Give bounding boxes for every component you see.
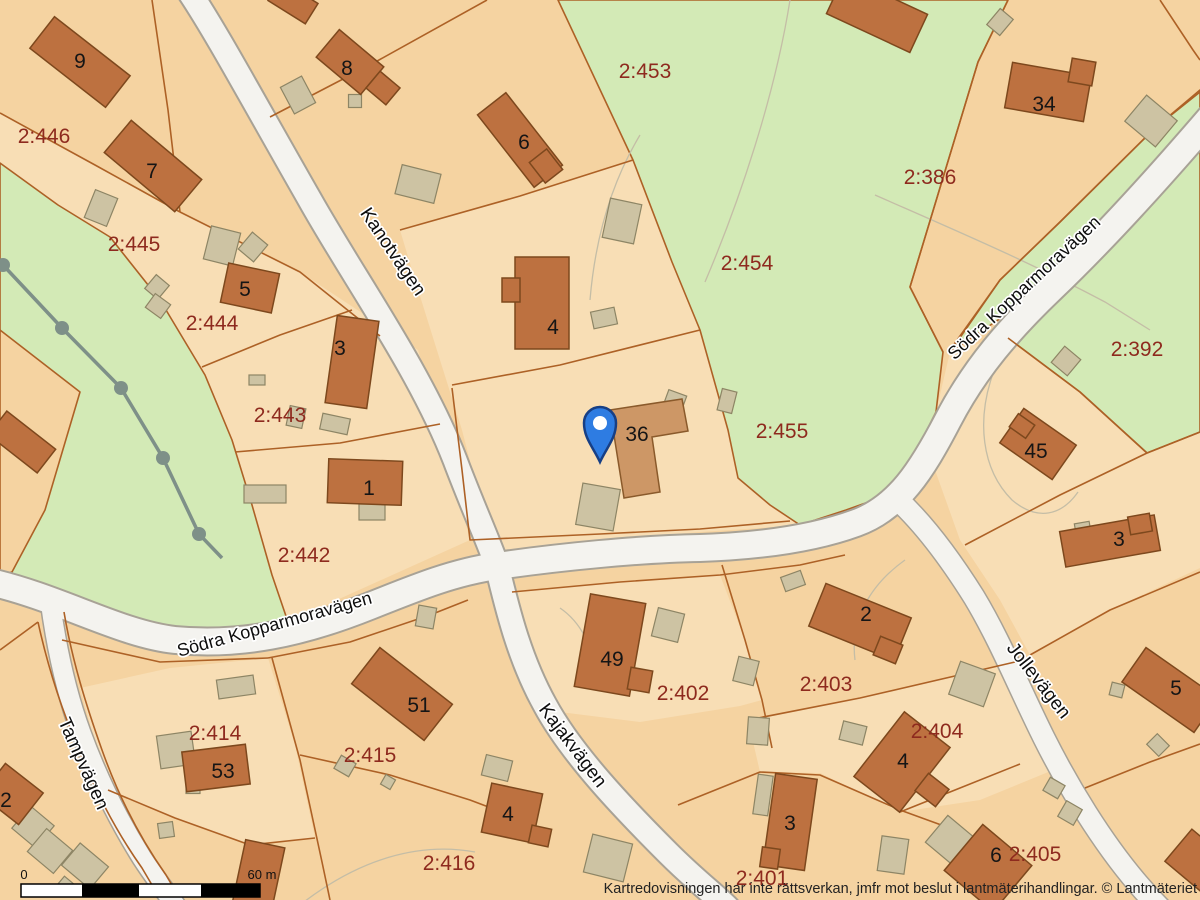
house-number-4a: 4 (547, 316, 559, 339)
house-number-6b: 6 (990, 844, 1002, 867)
parcel-label-2402: 2:402 (657, 682, 710, 705)
scale-distance-label: 60 m (248, 867, 277, 882)
building-34-wing (1068, 58, 1096, 86)
house-number-53: 53 (211, 760, 234, 783)
attribution-text: Kartredovisningen har inte rättsverkan, … (604, 881, 1197, 897)
house-number-6: 6 (518, 131, 530, 154)
house-number-34: 34 (1032, 93, 1056, 116)
building-4b-wing (528, 825, 551, 847)
house-number-9: 9 (74, 50, 86, 73)
parcel-label-2442: 2:442 (278, 544, 331, 567)
parcel-label-2416: 2:416 (423, 852, 476, 875)
building-3b-wing (1128, 513, 1153, 535)
pin-center-dot (593, 416, 607, 430)
building-4a (515, 257, 569, 349)
house-number-2a: 2 (0, 789, 12, 812)
house-number-45: 45 (1024, 440, 1047, 463)
parcel-label-2386: 2:386 (904, 166, 957, 189)
house-number-4b: 4 (502, 803, 514, 826)
cadastral-map[interactable]: 2:446 2:445 2:444 2:443 2:442 2:453 2:45… (0, 0, 1200, 900)
house-number-5b: 5 (1170, 677, 1182, 700)
parcel-label-2403: 2:403 (800, 673, 853, 696)
parcel-label-2445: 2:445 (108, 233, 161, 256)
house-number-3c: 3 (784, 812, 796, 835)
parcel-label-2405: 2:405 (1009, 843, 1062, 866)
map-canvas[interactable]: 2:446 2:445 2:444 2:443 2:442 2:453 2:45… (0, 0, 1200, 900)
house-number-2b: 2 (860, 603, 872, 626)
building-3c-wing (760, 847, 781, 869)
parcel-label-2404: 2:404 (911, 720, 964, 743)
house-number-1: 1 (363, 477, 375, 500)
parcel-label-2455: 2:455 (756, 420, 809, 443)
house-number-3a: 3 (334, 337, 346, 360)
parcel-label-2443: 2:443 (254, 404, 307, 427)
house-number-49: 49 (600, 648, 623, 671)
building-49-wing (627, 667, 652, 692)
parcel-label-2415: 2:415 (344, 744, 397, 767)
parcel-label-2392: 2:392 (1111, 338, 1164, 361)
house-number-5: 5 (239, 278, 251, 301)
house-number-4c: 4 (897, 750, 909, 773)
house-number-7: 7 (146, 160, 158, 183)
house-number-3b: 3 (1113, 528, 1125, 551)
parcel-label-2414: 2:414 (189, 722, 242, 745)
parcel-label-2444: 2:444 (186, 312, 239, 335)
parcel-label-2446: 2:446 (18, 125, 71, 148)
house-number-8: 8 (341, 57, 353, 80)
house-number-51: 51 (407, 694, 430, 717)
parcel-label-2453: 2:453 (619, 60, 672, 83)
parcel-label-2454: 2:454 (721, 252, 774, 275)
scale-zero-label: 0 (20, 867, 27, 882)
house-number-36: 36 (625, 423, 648, 446)
building-4a-wing (502, 278, 520, 302)
